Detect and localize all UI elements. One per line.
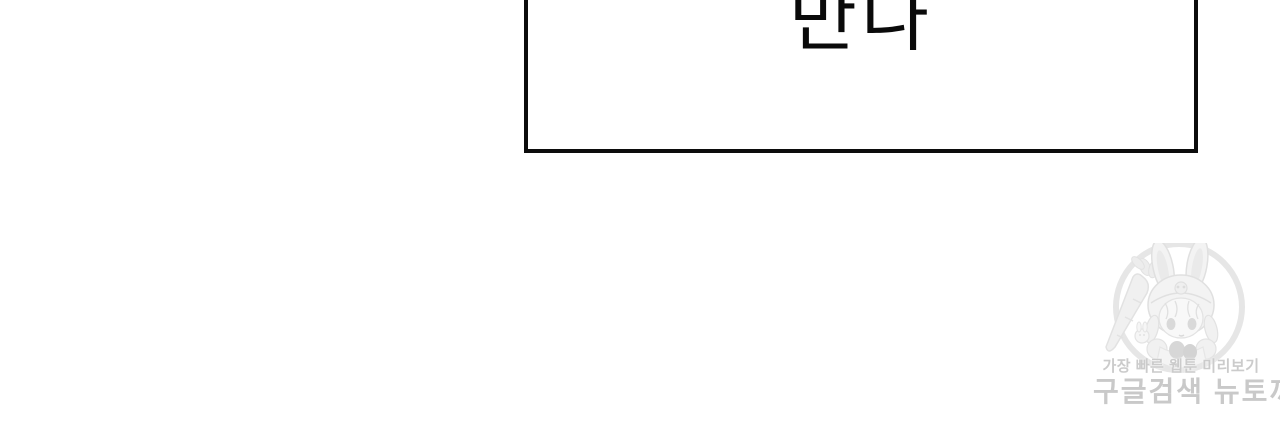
watermark-tagline: 가장 빠른 웹툰 미리보기	[1093, 355, 1269, 376]
bunny-hood-girl-with-carrot-icon	[1093, 243, 1269, 411]
comic-page: 만나	[0, 0, 1280, 427]
watermark: 가장 빠른 웹툰 미리보기 구글검색 뉴토끼	[1093, 243, 1269, 411]
speech-text: 만나	[528, 0, 1194, 56]
carrot-icon	[1106, 255, 1161, 351]
small-bunny-icon	[1135, 322, 1149, 343]
watermark-site-text: 구글검색 뉴토끼	[1093, 370, 1269, 410]
speech-panel: 만나	[524, 0, 1198, 153]
